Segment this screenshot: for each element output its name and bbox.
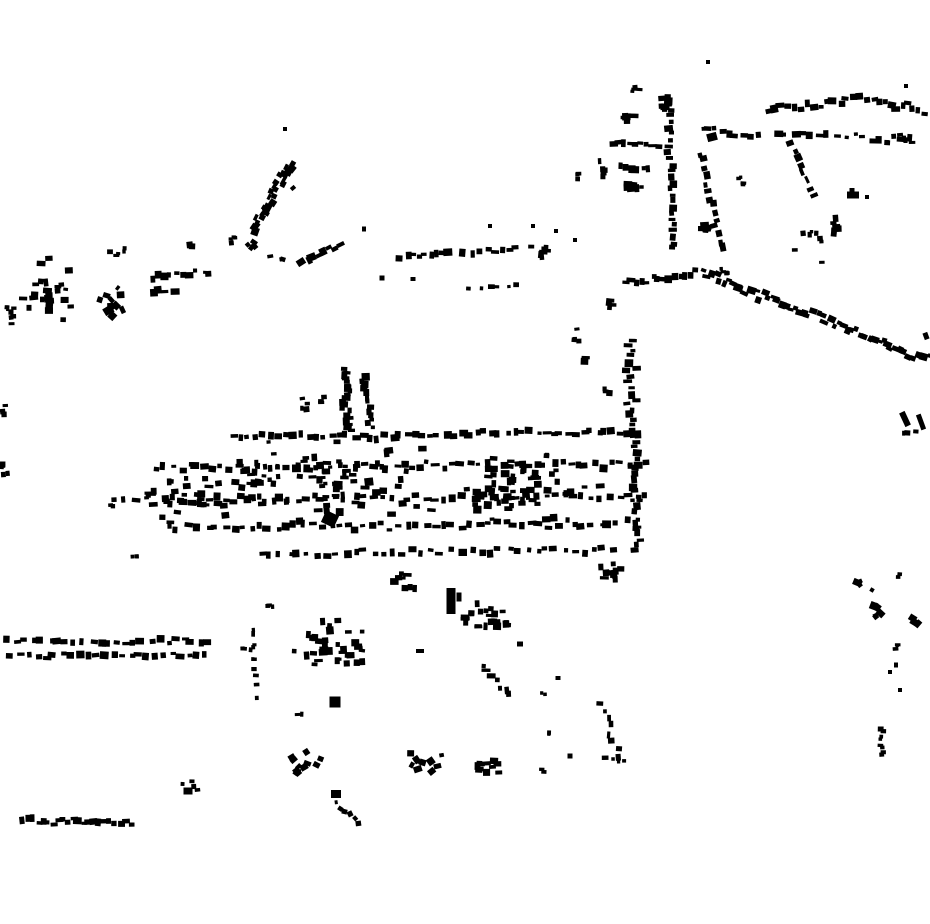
building — [490, 472, 497, 478]
building — [150, 276, 155, 283]
building — [608, 738, 615, 744]
building — [185, 639, 193, 645]
building — [513, 282, 519, 287]
building — [625, 516, 631, 523]
building — [407, 750, 414, 756]
building — [111, 821, 116, 826]
building — [443, 248, 452, 256]
building — [229, 499, 237, 504]
building — [183, 483, 191, 489]
building — [368, 412, 373, 418]
building — [556, 676, 561, 680]
building — [555, 523, 563, 529]
building — [336, 459, 342, 463]
building — [637, 88, 643, 92]
building — [205, 271, 211, 277]
building — [171, 288, 180, 295]
building — [314, 553, 321, 559]
building — [416, 649, 424, 653]
building — [344, 660, 350, 666]
building — [473, 489, 481, 496]
building — [598, 158, 602, 164]
building — [814, 231, 819, 236]
building — [542, 546, 548, 550]
building — [381, 552, 386, 557]
building — [609, 460, 614, 465]
building — [341, 809, 347, 815]
building — [666, 156, 673, 160]
building — [29, 295, 38, 301]
building — [576, 172, 582, 176]
building — [364, 477, 374, 486]
building — [302, 456, 309, 460]
building — [510, 490, 516, 493]
building — [490, 517, 495, 520]
building — [37, 261, 46, 267]
building — [36, 654, 42, 659]
building — [149, 639, 155, 645]
building — [73, 817, 82, 824]
building — [637, 141, 643, 145]
building — [785, 139, 794, 147]
building — [418, 446, 426, 452]
building — [797, 162, 805, 170]
building — [38, 278, 44, 284]
building — [439, 753, 444, 758]
building — [389, 495, 394, 502]
building — [669, 211, 674, 216]
building — [498, 486, 507, 491]
building — [853, 326, 859, 332]
building — [799, 168, 805, 176]
building — [517, 642, 523, 647]
building — [367, 435, 373, 443]
building — [171, 652, 176, 655]
building — [413, 765, 423, 774]
building — [45, 820, 49, 824]
building — [782, 132, 786, 136]
building — [395, 484, 402, 489]
building — [323, 553, 331, 559]
building — [276, 551, 280, 557]
building — [486, 614, 494, 617]
building — [251, 645, 255, 650]
building — [0, 464, 5, 468]
building — [180, 468, 187, 474]
building — [464, 487, 470, 492]
building — [636, 498, 642, 502]
building — [487, 549, 494, 557]
building — [345, 652, 351, 658]
building — [622, 759, 626, 763]
building — [40, 297, 44, 303]
building — [323, 461, 331, 465]
building — [403, 573, 412, 577]
building — [160, 652, 166, 658]
building — [480, 286, 484, 290]
building — [511, 245, 518, 250]
building — [113, 640, 120, 645]
building — [441, 521, 446, 529]
building — [96, 296, 103, 303]
building — [666, 113, 674, 117]
building — [545, 494, 550, 497]
building — [292, 649, 297, 654]
building — [418, 550, 423, 557]
building — [197, 497, 205, 501]
building — [630, 113, 638, 118]
building — [623, 430, 632, 437]
building — [630, 418, 637, 423]
building — [123, 246, 127, 250]
building — [613, 520, 618, 525]
building — [810, 230, 813, 233]
building — [669, 204, 677, 211]
building — [304, 552, 309, 556]
building — [706, 132, 718, 142]
building — [208, 465, 216, 472]
building — [306, 631, 311, 638]
building — [701, 268, 707, 273]
building — [504, 506, 512, 511]
building — [54, 285, 61, 288]
building — [330, 697, 341, 708]
building — [322, 468, 330, 474]
building — [592, 460, 599, 467]
building — [568, 462, 575, 465]
building — [319, 649, 328, 656]
building — [250, 526, 255, 532]
building — [350, 479, 357, 484]
building — [644, 281, 650, 284]
building — [167, 641, 172, 646]
building — [170, 494, 175, 501]
building — [336, 642, 340, 647]
building — [506, 431, 511, 436]
building — [491, 250, 499, 254]
building — [726, 271, 730, 275]
building — [495, 678, 500, 683]
building — [573, 337, 577, 342]
building — [411, 277, 416, 281]
building — [130, 555, 134, 559]
building — [387, 512, 396, 517]
building — [831, 323, 837, 329]
building — [621, 139, 626, 147]
building — [855, 93, 863, 100]
building — [60, 639, 67, 644]
building — [421, 253, 427, 256]
building — [142, 652, 149, 660]
building — [543, 487, 551, 494]
building — [642, 166, 646, 170]
building — [459, 526, 467, 531]
building — [494, 430, 500, 437]
building — [359, 658, 365, 665]
building — [283, 498, 289, 505]
building — [215, 480, 222, 486]
building — [634, 462, 643, 469]
building — [486, 247, 492, 252]
building — [17, 652, 24, 655]
building — [539, 253, 544, 261]
building — [668, 185, 673, 191]
building — [119, 654, 125, 657]
building — [92, 653, 100, 658]
building — [167, 272, 171, 277]
building — [296, 257, 307, 267]
building — [555, 479, 560, 485]
building — [322, 495, 329, 498]
building — [410, 253, 417, 257]
building — [669, 120, 674, 124]
building — [545, 526, 553, 530]
building — [221, 512, 229, 519]
building — [622, 368, 630, 374]
building — [599, 464, 608, 472]
building — [288, 432, 297, 440]
building — [342, 431, 347, 438]
building — [527, 547, 532, 552]
building — [193, 268, 197, 272]
building — [542, 516, 551, 522]
building — [632, 366, 641, 371]
building — [19, 816, 25, 824]
building — [476, 463, 480, 466]
building — [247, 473, 255, 476]
building — [706, 60, 710, 64]
building — [320, 435, 325, 440]
building — [172, 526, 177, 533]
building — [622, 113, 628, 121]
building — [61, 651, 66, 655]
building — [44, 295, 49, 303]
building — [916, 414, 926, 431]
building — [493, 761, 501, 766]
building — [357, 494, 366, 498]
building — [625, 410, 633, 418]
building — [847, 192, 859, 199]
building — [220, 503, 228, 509]
building — [43, 278, 48, 286]
building — [292, 550, 300, 558]
building — [664, 149, 672, 155]
building — [478, 762, 485, 766]
building — [625, 359, 634, 367]
building — [710, 200, 717, 207]
building — [603, 709, 607, 713]
building — [11, 306, 16, 309]
building — [262, 525, 271, 531]
building — [129, 640, 135, 646]
building — [321, 395, 327, 400]
building — [365, 398, 369, 403]
building — [688, 272, 694, 279]
building — [633, 449, 642, 457]
building — [617, 432, 624, 436]
building — [305, 402, 310, 406]
building — [238, 484, 245, 491]
building — [607, 493, 614, 500]
building — [461, 615, 470, 621]
building — [442, 466, 447, 472]
building — [800, 131, 806, 135]
building — [253, 214, 259, 221]
building — [831, 229, 838, 237]
building — [236, 464, 244, 468]
building — [854, 132, 858, 136]
building — [455, 461, 464, 467]
building — [909, 105, 914, 112]
building — [596, 496, 601, 503]
building — [668, 169, 676, 173]
building — [340, 492, 345, 499]
building — [432, 525, 440, 529]
building — [70, 639, 75, 645]
building — [304, 651, 310, 659]
building — [60, 317, 66, 322]
building — [648, 144, 656, 147]
building — [605, 570, 610, 575]
building — [244, 435, 249, 440]
building — [19, 296, 27, 300]
building — [177, 498, 184, 504]
building — [372, 489, 381, 496]
building — [185, 272, 194, 279]
building — [610, 547, 617, 553]
building — [485, 466, 492, 472]
building — [51, 822, 58, 826]
building — [200, 463, 209, 470]
building — [665, 144, 673, 148]
building — [351, 639, 359, 646]
building — [308, 467, 313, 472]
building — [600, 166, 605, 172]
building — [634, 430, 641, 438]
building — [169, 479, 174, 484]
building — [300, 460, 307, 464]
building — [524, 427, 532, 434]
building — [188, 500, 197, 506]
building — [402, 585, 409, 591]
building — [323, 503, 330, 508]
building — [632, 398, 640, 402]
building — [401, 461, 409, 468]
building — [271, 452, 277, 456]
building — [6, 305, 9, 311]
building — [510, 473, 515, 478]
building — [430, 498, 439, 501]
building — [106, 818, 111, 824]
building — [628, 386, 634, 389]
building — [341, 367, 347, 371]
building — [349, 473, 356, 477]
building — [672, 273, 679, 280]
building — [333, 486, 340, 492]
building — [740, 133, 748, 138]
building — [543, 693, 547, 697]
building — [508, 522, 516, 527]
building — [189, 779, 194, 783]
building — [351, 527, 359, 534]
building — [850, 188, 855, 192]
building — [578, 492, 583, 499]
building — [187, 653, 192, 657]
building — [255, 696, 259, 700]
building — [412, 492, 420, 498]
building — [645, 165, 650, 172]
building — [713, 218, 720, 224]
building — [412, 521, 418, 528]
building — [457, 492, 466, 499]
building — [300, 406, 303, 411]
building — [336, 508, 344, 516]
building — [888, 670, 892, 674]
building — [506, 691, 511, 697]
building — [333, 439, 340, 444]
building — [345, 630, 352, 634]
building — [424, 459, 429, 464]
building — [514, 461, 522, 467]
building — [712, 126, 717, 131]
building — [457, 593, 462, 602]
building — [809, 307, 818, 315]
building — [481, 664, 486, 669]
building — [504, 493, 511, 500]
building — [669, 131, 674, 135]
building — [211, 525, 217, 530]
building — [664, 275, 672, 283]
building — [597, 544, 605, 550]
building — [611, 561, 616, 566]
building — [204, 485, 213, 489]
building — [833, 215, 839, 222]
building — [514, 548, 521, 554]
building — [630, 166, 639, 173]
building — [302, 496, 310, 501]
building — [876, 99, 882, 106]
building — [528, 245, 534, 249]
building — [495, 619, 501, 625]
building — [184, 522, 193, 528]
building — [36, 637, 43, 644]
building — [181, 782, 185, 786]
building — [115, 285, 121, 291]
building — [896, 644, 899, 647]
building — [283, 127, 287, 131]
building — [149, 502, 158, 507]
building — [380, 276, 385, 281]
building — [447, 588, 456, 614]
building — [582, 550, 588, 557]
building — [231, 434, 239, 438]
building — [504, 620, 508, 627]
building — [627, 353, 635, 357]
building — [265, 604, 270, 608]
building — [378, 521, 384, 526]
building — [819, 261, 825, 264]
building — [607, 302, 612, 310]
building — [424, 523, 431, 528]
building — [360, 524, 365, 528]
building — [756, 132, 762, 138]
building — [572, 550, 579, 553]
building — [669, 218, 676, 221]
building — [30, 814, 35, 822]
building — [879, 752, 884, 757]
building — [238, 434, 243, 441]
building — [251, 631, 255, 637]
